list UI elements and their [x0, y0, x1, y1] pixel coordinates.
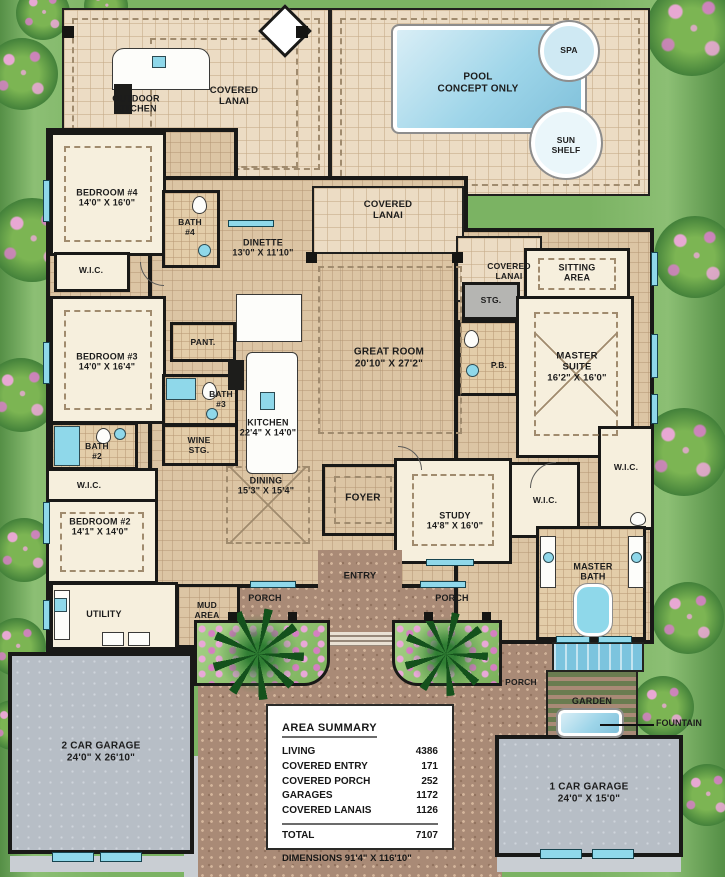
- label-sun-shelf: SUN SHELF: [552, 136, 581, 156]
- label-garage-1car: 1 CAR GARAGE 24'0" X 15'0": [549, 782, 628, 805]
- dryer: [128, 632, 150, 646]
- label-foyer: FOYER: [345, 492, 380, 504]
- garage-door: [100, 852, 142, 862]
- label-mud-area: MUD AREA: [195, 601, 220, 621]
- window: [420, 581, 466, 588]
- label-fountain: FOUNTAIN: [656, 718, 702, 728]
- bush-decoration: [654, 216, 725, 298]
- outdoor-sink: [152, 56, 166, 68]
- summary-row-total: TOTAL7107: [282, 823, 438, 844]
- garage-apron: [497, 856, 681, 872]
- entry-steps: [328, 632, 394, 646]
- label-wic-bed4: W.I.C.: [79, 266, 103, 276]
- summary-name: COVERED PORCH: [282, 775, 370, 790]
- window: [228, 220, 274, 227]
- bush-decoration: [676, 764, 725, 826]
- column: [228, 612, 237, 621]
- bush-decoration: [0, 38, 58, 110]
- washer: [102, 632, 124, 646]
- label-dining: DINING 15'3" X 15'4": [238, 476, 294, 497]
- summary-value: 4386: [416, 745, 438, 760]
- toilet: [464, 330, 479, 348]
- label-study: STUDY 14'8" X 16'0": [427, 511, 483, 532]
- summary-value: 252: [421, 775, 438, 790]
- kitchen-counter: [236, 294, 302, 342]
- palm-tree-decoration: [646, 0, 725, 76]
- summary-row-covered-entry: COVERED ENTRY171: [282, 760, 438, 775]
- label-master-suite: MASTER SUITE 16'2" X 16'0": [547, 352, 606, 385]
- label-porch-right: PORCH: [435, 593, 469, 603]
- label-spa: SPA: [560, 46, 577, 56]
- label-wic-master-right: W.I.C.: [614, 463, 638, 473]
- label-stg: STG.: [481, 296, 502, 306]
- summary-name: COVERED LANAIS: [282, 804, 371, 819]
- label-bedroom4: BEDROOM #4 14'0" X 16'0": [76, 188, 138, 209]
- window: [43, 600, 50, 630]
- label-pb: P.B.: [491, 361, 507, 371]
- label-pool: POOL CONCEPT ONLY: [438, 72, 519, 95]
- label-sitting-area: SITTING AREA: [559, 263, 596, 284]
- window: [651, 394, 658, 424]
- label-wic-bed2: W.I.C.: [77, 481, 101, 491]
- label-wine-stg: WINE STG.: [188, 436, 211, 456]
- summary-row-living: LIVING4386: [282, 745, 438, 760]
- window: [43, 180, 50, 222]
- summary-value: 1172: [416, 789, 438, 804]
- bathtub: [574, 584, 612, 636]
- summary-row-covered-lanais: COVERED LANAIS1126: [282, 804, 438, 819]
- fountain-leader-line: [600, 724, 654, 726]
- summary-dimensions: DIMENSIONS 91'4" X 116'10": [282, 853, 438, 864]
- summary-value: 1126: [416, 804, 438, 819]
- label-utility: UTILITY: [86, 609, 121, 619]
- column: [288, 612, 297, 621]
- window: [43, 342, 50, 384]
- label-bedroom3: BEDROOM #3 14'0" X 16'4": [76, 352, 138, 373]
- label-bedroom2: BEDROOM #2 14'1" X 14'0": [69, 517, 131, 538]
- label-pant: PANT.: [191, 338, 216, 348]
- column: [306, 252, 317, 263]
- label-porch-rear: PORCH: [505, 678, 537, 688]
- label-covered-lanai-mid: COVERED LANAI: [364, 200, 412, 222]
- floor-plan-canvas: OUTDOOR KITCHEN COVERED LANAI POOL CONCE…: [0, 0, 725, 877]
- toilet: [192, 196, 207, 214]
- shower: [166, 378, 196, 400]
- summary-name: COVERED ENTRY: [282, 760, 368, 775]
- fountain-basin: [558, 710, 622, 736]
- sink: [198, 244, 211, 257]
- label-bath3: BATH #3: [209, 390, 233, 410]
- column: [62, 26, 74, 38]
- summary-row-garages: GARAGES1172: [282, 789, 438, 804]
- label-master-bath: MASTER BATH: [573, 562, 612, 583]
- garage-door: [592, 849, 634, 859]
- garage-door: [540, 849, 582, 859]
- label-covered-lanai-right: COVERED LANAI: [487, 262, 530, 282]
- label-bath4: BATH #4: [178, 218, 202, 238]
- label-dinette: DINETTE 13'0" X 11'10": [232, 238, 293, 259]
- summary-value: 171: [421, 760, 438, 775]
- label-porch-left: PORCH: [248, 593, 282, 603]
- window: [426, 559, 474, 566]
- window: [556, 636, 590, 643]
- palm-tree: [212, 608, 304, 700]
- entry-paving: [318, 550, 402, 636]
- window: [43, 502, 50, 544]
- window: [250, 581, 296, 588]
- window: [651, 252, 658, 286]
- label-outdoor-kitchen: OUTDOOR KITCHEN: [112, 94, 159, 115]
- sink: [206, 408, 218, 420]
- sink: [466, 364, 479, 377]
- kitchen-island: [246, 352, 298, 474]
- label-covered-lanai-top: COVERED LANAI: [210, 86, 258, 108]
- label-great-room: GREAT ROOM 20'10" X 27'2": [354, 347, 424, 370]
- label-bath2: BATH #2: [85, 442, 109, 462]
- rear-water-feature: [552, 642, 644, 672]
- shower: [54, 426, 80, 466]
- summary-row-covered-porch: COVERED PORCH252: [282, 775, 438, 790]
- column: [452, 252, 463, 263]
- bush-decoration: [652, 582, 724, 654]
- label-entry: ENTRY: [344, 572, 377, 583]
- room-wic-bed2: [46, 468, 158, 502]
- summary-name: LIVING: [282, 745, 315, 760]
- label-garage-2car: 2 CAR GARAGE 24'0" X 26'10": [61, 741, 140, 764]
- palm-tree: [404, 612, 488, 696]
- summary-name: GARAGES: [282, 789, 333, 804]
- range: [228, 360, 244, 390]
- toilet: [630, 512, 646, 526]
- area-summary-box: AREA SUMMARY LIVING4386 COVERED ENTRY171…: [266, 704, 454, 850]
- room-wic-master-right: [598, 426, 654, 530]
- utility-sink: [54, 598, 67, 612]
- column: [424, 612, 433, 621]
- label-kitchen: KITCHEN 22'4" X 14'0": [240, 418, 296, 439]
- area-summary-title: AREA SUMMARY: [282, 722, 377, 738]
- column: [296, 26, 308, 38]
- sink: [543, 552, 554, 563]
- label-garden: GARDEN: [572, 696, 612, 706]
- label-wic-master-left: W.I.C.: [533, 496, 557, 506]
- kitchen-sink: [260, 392, 275, 410]
- bush-decoration: [632, 676, 694, 738]
- garage-door: [52, 852, 94, 862]
- sink: [631, 552, 642, 563]
- window: [598, 636, 632, 643]
- summary-value: 7107: [416, 829, 438, 844]
- column: [482, 612, 491, 621]
- summary-name: TOTAL: [282, 829, 314, 844]
- sink: [114, 428, 126, 440]
- window: [651, 334, 658, 378]
